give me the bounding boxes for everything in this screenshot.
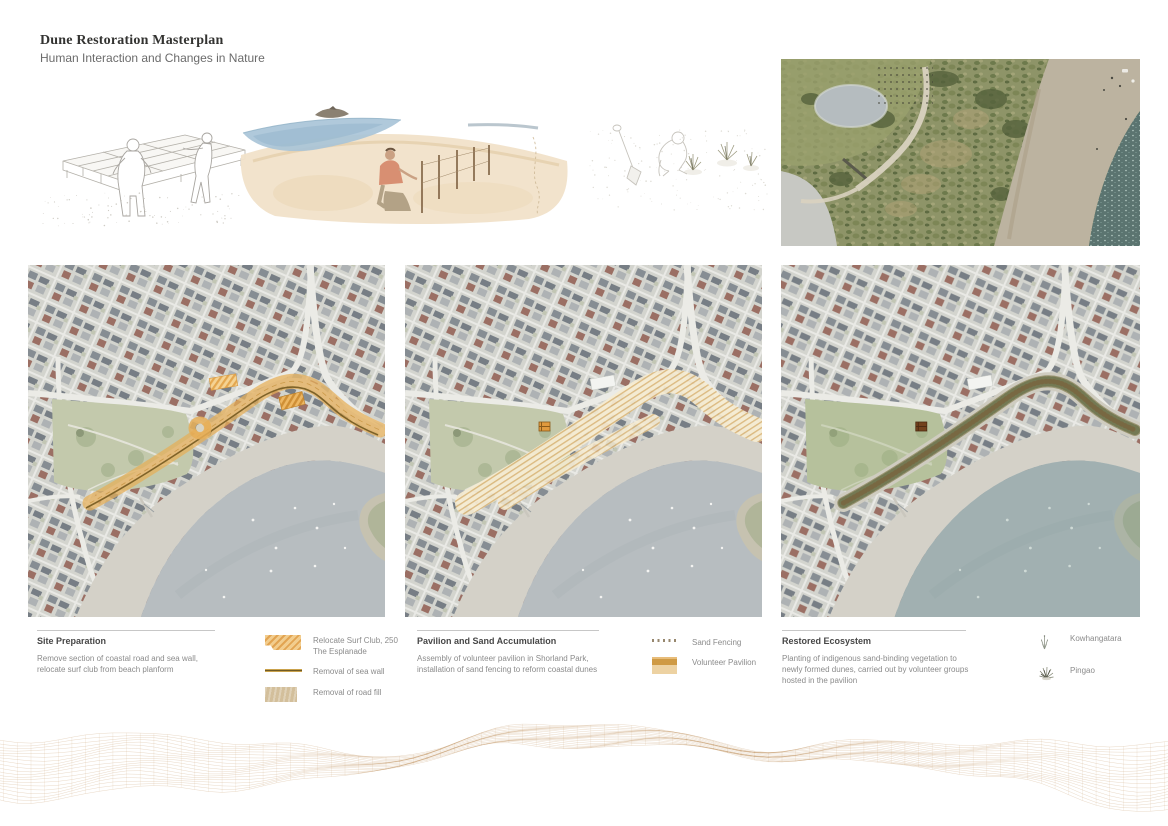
volunteer-pavilion-swatch — [652, 657, 677, 674]
sand-fencing-dotted-line-swatch — [652, 639, 679, 642]
legend-item: Kowhangatara — [1038, 633, 1122, 656]
legend-label: Pingao — [1070, 665, 1095, 676]
section-heading: Pavilion and Sand Accumulation — [417, 636, 632, 646]
planting-grid-dots — [877, 65, 933, 105]
volunteer-pavilion-marker — [539, 422, 550, 431]
legend-item: Removal of sea wall — [265, 666, 403, 677]
legend-label: Removal of sea wall — [313, 666, 403, 677]
title-block: Dune Restoration Masterplan Human Intera… — [40, 33, 265, 65]
section-restored-ecosystem: Restored Ecosystem Planting of indigenou… — [782, 630, 982, 686]
legend-label: Relocate Surf Club, 250 The Esplanade — [313, 635, 403, 657]
legend-item: Volunteer Pavilion — [652, 657, 756, 674]
section-body: Assembly of volunteer pavilion in Shorla… — [417, 654, 622, 676]
map-pavilion-sand-accumulation — [405, 265, 762, 617]
page-subtitle: Human Interaction and Changes in Nature — [40, 51, 265, 65]
kowhangatara-plant-icon — [1038, 633, 1051, 651]
aerial-photo-restored-dunes — [781, 59, 1140, 246]
surf-club-hatch-swatch — [265, 635, 301, 650]
legend-pavilion-sand: Sand Fencing Volunteer Pavilion — [652, 637, 756, 683]
presentation-board: Dune Restoration Masterplan Human Intera… — [0, 0, 1168, 826]
section-body: Remove section of coastal road and sea w… — [37, 654, 219, 676]
page-title: Dune Restoration Masterplan — [40, 33, 265, 49]
volunteer-pavilion-marker — [916, 422, 927, 431]
section-rule — [782, 630, 966, 631]
legend-label: Volunteer Pavilion — [692, 657, 756, 668]
sea-wall-line-swatch — [265, 669, 302, 672]
legend-item: Sand Fencing — [652, 637, 756, 648]
sand-stipple — [590, 129, 768, 210]
section-site-preparation: Site Preparation Remove section of coast… — [37, 630, 242, 676]
dune-planting-sketch — [575, 108, 770, 220]
section-body: Planting of indigenous sand-binding vege… — [782, 654, 974, 686]
legend-label: Sand Fencing — [692, 637, 741, 648]
section-heading: Site Preparation — [37, 636, 242, 646]
section-heading: Restored Ecosystem — [782, 636, 982, 646]
legend-label: Removal of road fill — [313, 687, 403, 698]
road-fill-swatch — [265, 687, 297, 702]
legend-label: Kowhangatara — [1070, 633, 1122, 644]
section-rule — [417, 630, 599, 631]
dune-mesh-decoration — [0, 702, 1168, 820]
legend-item: Pingao — [1038, 665, 1122, 687]
section-rule — [37, 630, 215, 631]
section-pavilion-sand-accumulation: Pavilion and Sand Accumulation Assembly … — [417, 630, 632, 676]
legend-restored-ecosystem: Kowhangatara Pingao — [1038, 633, 1122, 696]
legend-site-preparation: Relocate Surf Club, 250 The Esplanade Re… — [265, 635, 403, 711]
map-site-preparation — [28, 265, 385, 617]
map-restored-ecosystem — [781, 265, 1140, 617]
platform-construction-sketch — [35, 98, 250, 230]
pingao-grass-icon — [1038, 665, 1055, 682]
legend-item: Relocate Surf Club, 250 The Esplanade — [265, 635, 403, 657]
legend-item: Removal of road fill — [265, 687, 403, 702]
beach-fencing-watercolor — [233, 103, 573, 228]
